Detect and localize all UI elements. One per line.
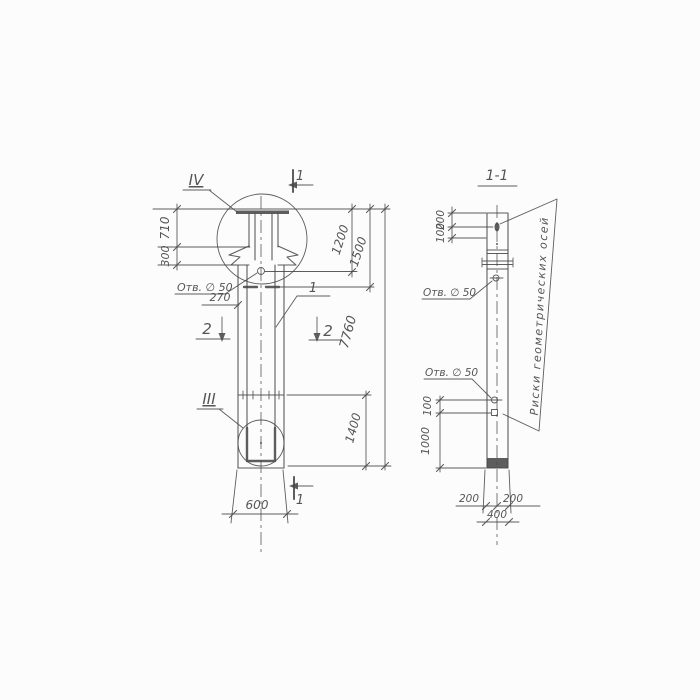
axis-mark-top (495, 223, 500, 232)
cut1-top-label: 1 (296, 169, 304, 184)
section-hole-note-upper: Отв. ∅ 50 (423, 287, 476, 299)
section-hole-note-lower: Отв. ∅ 50 (425, 367, 478, 379)
section-title: 1-1 (486, 168, 509, 184)
dim-100-top: 100 (435, 223, 447, 243)
dim-200-left: 200 (459, 493, 479, 505)
dim-400: 400 (487, 509, 507, 521)
cap-plate (236, 211, 289, 215)
front-hole-note: Отв. ∅ 50 (177, 281, 233, 294)
section-dimension-lines (440, 207, 540, 522)
dim-7760: 7760 (337, 314, 360, 350)
drawing-canvas: 710 300 1200 1500 7760 1400 600 270 IV I… (0, 0, 700, 700)
dim-1000: 1000 (419, 427, 432, 455)
part1-label: 1 (309, 281, 317, 296)
detail-label-iv: IV (189, 171, 205, 189)
cut2-right-label: 2 (323, 322, 333, 340)
cut2-left-lines (196, 317, 230, 339)
detail-label-iii: III (202, 390, 216, 408)
dim-710: 710 (158, 216, 172, 239)
detail-dot (260, 442, 262, 444)
dim-300: 300 (159, 246, 172, 267)
dim-100-bottom: 100 (422, 396, 434, 416)
dim-600: 600 (246, 498, 269, 512)
neck (249, 214, 278, 260)
cut2-left-label: 2 (202, 320, 212, 338)
cut2-left-arrowhead (219, 333, 226, 342)
dim-1400: 1400 (342, 411, 364, 444)
section-bottom-band (487, 458, 508, 468)
section-body (487, 213, 508, 468)
dim-1500: 1500 (347, 235, 370, 269)
section-hole-leader-lower (424, 379, 491, 398)
left-barb (229, 246, 249, 265)
right-barb (278, 246, 298, 265)
drawing-sheet: 710 300 1200 1500 7760 1400 600 270 IV I… (0, 0, 700, 700)
detail-circle-top (217, 194, 307, 284)
cut2-right-arrowhead (314, 333, 321, 342)
front-marks: IV III 1 1 2 2 1 Отв. ∅ 50 (175, 169, 341, 508)
cut1-bottom-label: 1 (296, 493, 304, 508)
dim-200-right: 200 (503, 493, 523, 505)
detail-iii-leader (197, 409, 243, 428)
center-dot (496, 243, 498, 245)
dim-1200: 1200 (329, 223, 352, 257)
